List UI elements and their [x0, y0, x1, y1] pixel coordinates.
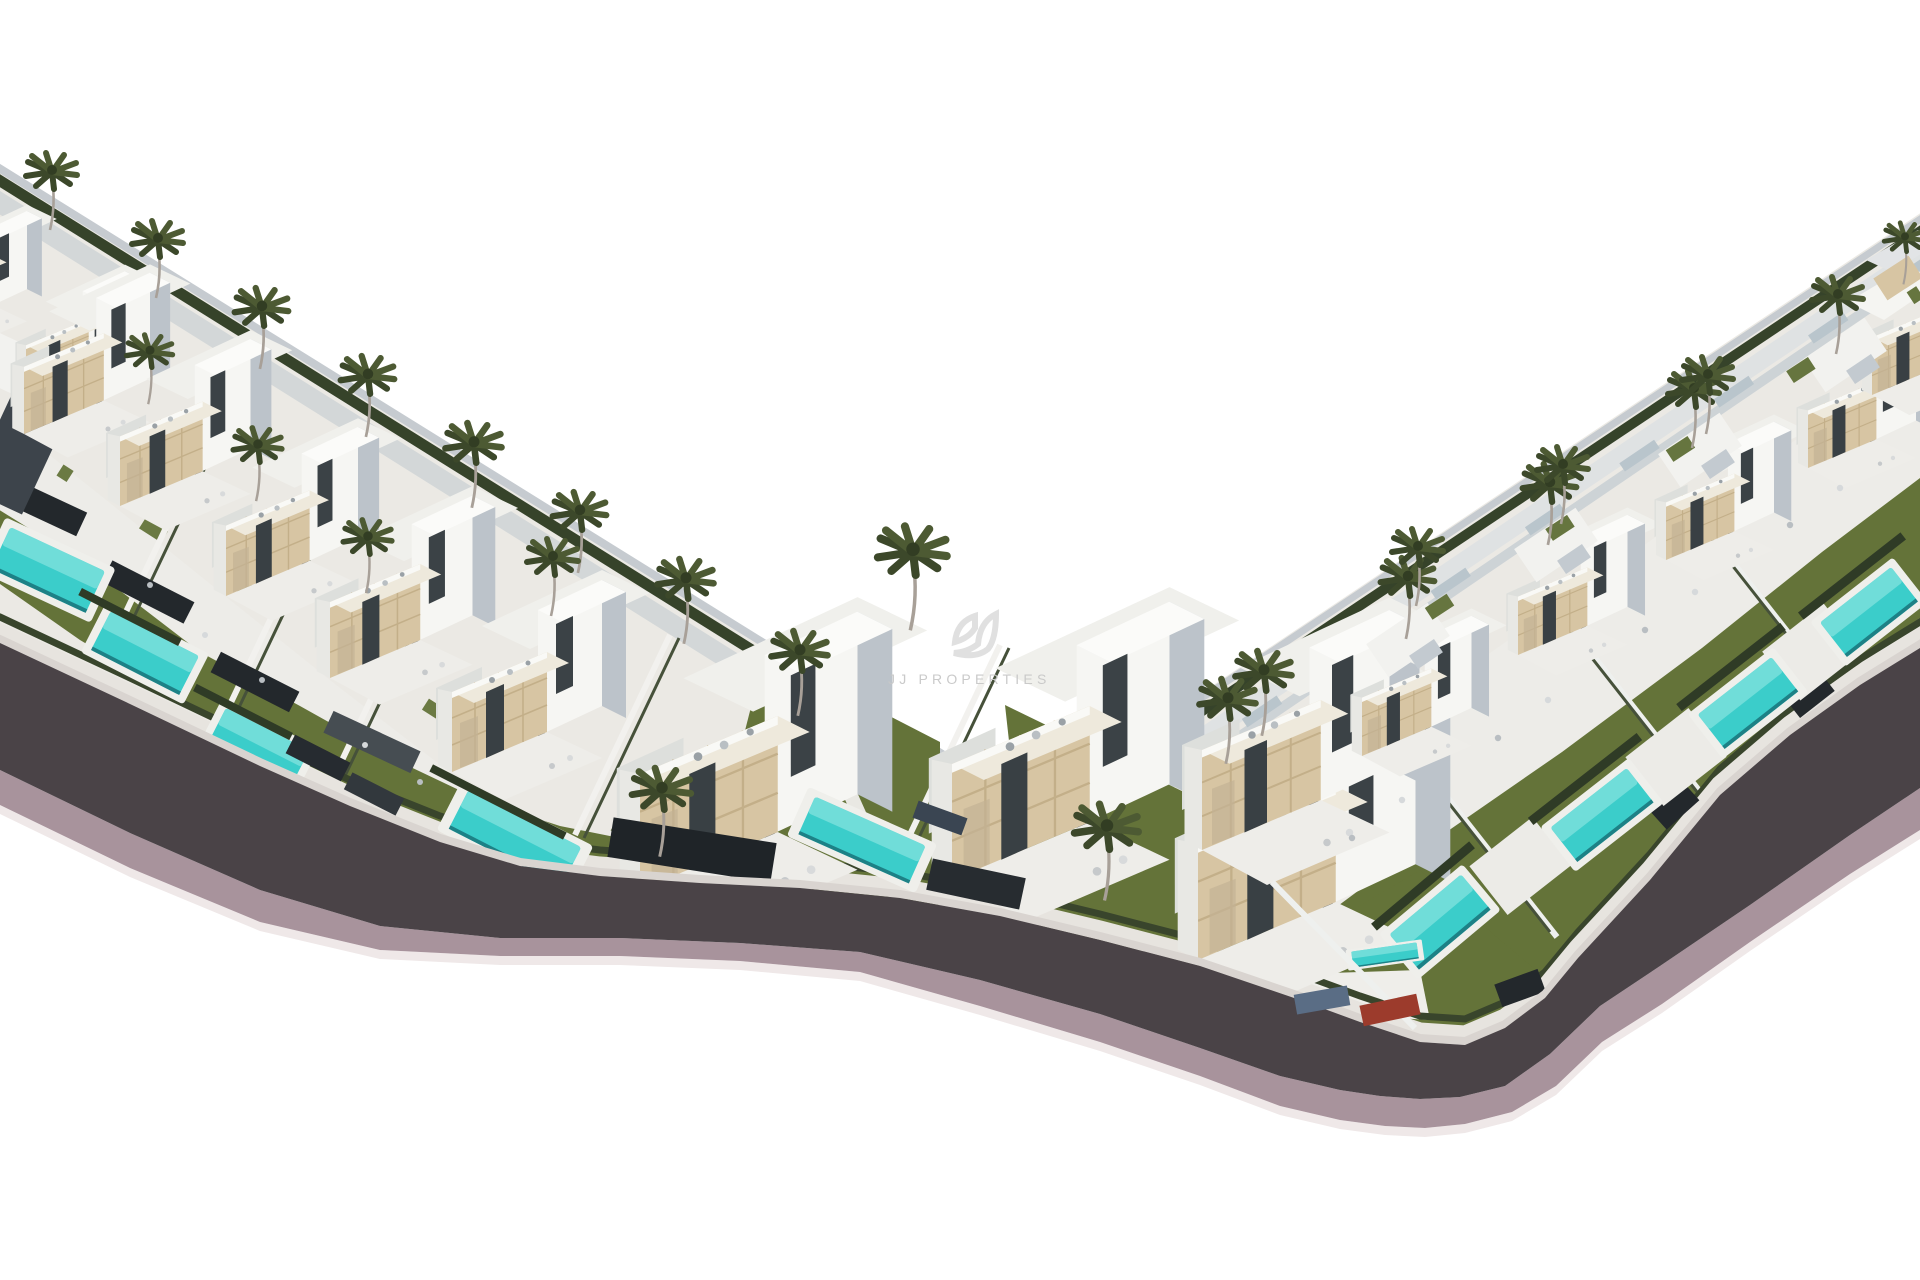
svg-text:JJ PROPERTIES: JJ PROPERTIES	[888, 671, 1050, 687]
